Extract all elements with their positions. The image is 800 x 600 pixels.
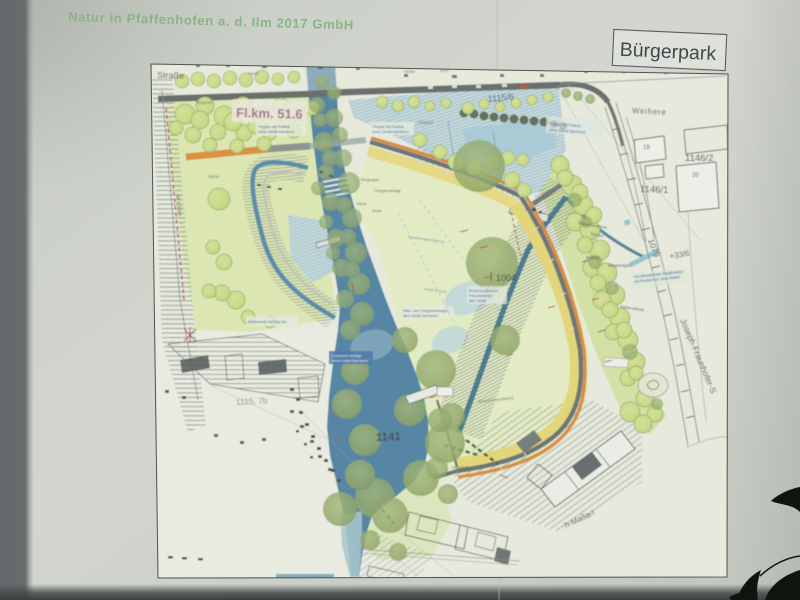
svg-text:Bürgerpark: Bürgerpark (619, 39, 717, 65)
